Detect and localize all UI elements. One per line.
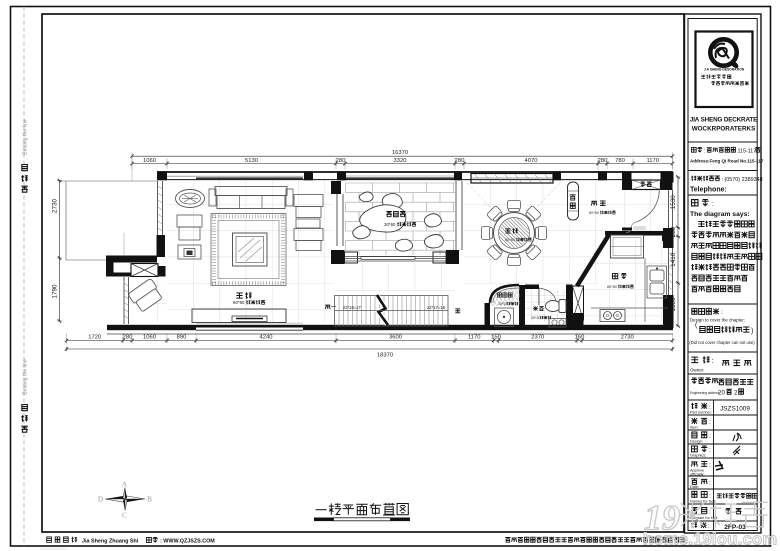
svg-text::: : — [721, 309, 723, 316]
svg-text:22*17=16: 22*17=16 — [427, 305, 446, 310]
svg-text:Design to cover the chapter:: Design to cover the chapter: — [690, 318, 745, 323]
svg-text::: : — [709, 433, 711, 440]
svg-text:3600: 3600 — [389, 335, 402, 341]
svg-text:2: 2 — [734, 390, 738, 397]
svg-text:Graphics:: Graphics: — [690, 454, 706, 458]
svg-text:22*18=1T: 22*18=1T — [343, 305, 362, 310]
svg-text::: : — [712, 356, 714, 365]
svg-text::: : — [712, 199, 714, 208]
svg-text:Binding the line: Binding the line — [23, 359, 29, 395]
svg-text:1170: 1170 — [468, 335, 480, 341]
svg-text:The diagram says:: The diagram says: — [690, 211, 750, 218]
svg-text::: : — [709, 447, 711, 454]
svg-text:80*80: 80*80 — [589, 211, 599, 215]
svg-text::: : — [708, 523, 710, 530]
svg-text::: : — [709, 419, 711, 426]
svg-text:19: 19 — [4, 547, 38, 551]
svg-text:80*80: 80*80 — [607, 285, 617, 289]
svg-text:1170: 1170 — [647, 158, 659, 164]
svg-text:Jia Sheng Zhuang Shi: Jia Sheng Zhuang Shi — [82, 539, 139, 545]
svg-text::: : — [709, 480, 711, 487]
svg-text:C: C — [122, 511, 127, 520]
svg-text:3320: 3320 — [394, 158, 407, 164]
svg-text:4240: 4240 — [260, 335, 273, 341]
svg-text:15*15: 15*15 — [498, 302, 507, 306]
svg-text:280: 280 — [336, 158, 346, 164]
svg-text:280: 280 — [123, 335, 133, 341]
svg-text::: : — [709, 509, 711, 516]
svg-text:30*60: 30*60 — [384, 222, 396, 227]
svg-text:Names for fact:: Names for fact: — [690, 500, 716, 504]
svg-text:160: 160 — [575, 335, 585, 341]
svg-text:JIA SHENG DECKRATE: JIA SHENG DECKRATE — [690, 117, 757, 124]
svg-text:20: 20 — [718, 390, 725, 397]
svg-text:280: 280 — [598, 158, 608, 164]
svg-text:B: B — [147, 495, 152, 504]
svg-text:Design:: Design: — [690, 440, 703, 444]
svg-text:18370: 18370 — [377, 353, 393, 359]
svg-text:Telephone:: Telephone: — [690, 187, 727, 194]
svg-text:150: 150 — [491, 335, 501, 341]
svg-text:Date:: Date: — [690, 485, 699, 489]
svg-text:1410: 1410 — [670, 252, 677, 267]
svg-text:5130: 5130 — [245, 158, 258, 164]
svg-text:2370: 2370 — [531, 335, 544, 341]
svg-text:WOCKRPORATERKS: WOCKRPORATERKS — [692, 126, 756, 133]
svg-text:30*30: 30*30 — [531, 316, 540, 320]
svg-text:officially:: officially: — [690, 473, 705, 477]
svg-text:80*80: 80*80 — [233, 300, 245, 305]
svg-text:780: 780 — [615, 158, 625, 164]
svg-text:2730: 2730 — [621, 335, 634, 341]
svg-text:Part number:: Part number: — [690, 411, 712, 415]
svg-text:1720: 1720 — [88, 335, 101, 341]
svg-text:280: 280 — [670, 226, 677, 237]
svg-text:A: A — [122, 480, 128, 489]
svg-text:890: 890 — [177, 335, 187, 341]
svg-text:Item:: Item: — [690, 426, 698, 430]
svg-text:D: D — [98, 495, 104, 504]
svg-text:16370: 16370 — [392, 150, 408, 156]
svg-text:J.A SHENG DESORATION: J.A SHENG DESORATION — [704, 68, 745, 72]
svg-text:: WWW.QZJSZS.COM: : WWW.QZJSZS.COM — [160, 539, 215, 545]
svg-text:1300: 1300 — [670, 297, 677, 312]
svg-text::: : — [709, 493, 711, 500]
svg-text:1060: 1060 — [143, 158, 156, 164]
svg-text:Binding the line: Binding the line — [23, 119, 29, 155]
svg-text:80*80: 80*80 — [505, 238, 515, 242]
svg-text:280: 280 — [455, 158, 465, 164]
svg-text:Address:Feng Qi Road No.115-1: Address:Feng Qi Road No.115-117 — [690, 159, 764, 164]
svg-text:Engineering address:: Engineering address: — [690, 391, 720, 395]
svg-text:): ) — [751, 328, 753, 335]
svg-text::: : — [709, 462, 711, 469]
svg-text:JSZS1009: JSZS1009 — [720, 406, 750, 413]
svg-text:(Did not cover chapter can not: (Did not cover chapter can not use) — [689, 340, 755, 345]
svg-text:: (0570) 2389348: : (0570) 2389348 — [722, 177, 763, 183]
svg-text:home.19lou.com: home.19lou.com — [643, 531, 777, 549]
svg-text:1060: 1060 — [143, 335, 156, 341]
svg-text:2730: 2730 — [52, 198, 59, 213]
svg-text:4070: 4070 — [525, 158, 538, 164]
svg-text:1530: 1530 — [670, 195, 677, 210]
svg-text:115-117: 115-117 — [738, 148, 757, 154]
svg-text:1790: 1790 — [52, 284, 59, 299]
svg-text:Owner:: Owner: — [690, 368, 705, 373]
